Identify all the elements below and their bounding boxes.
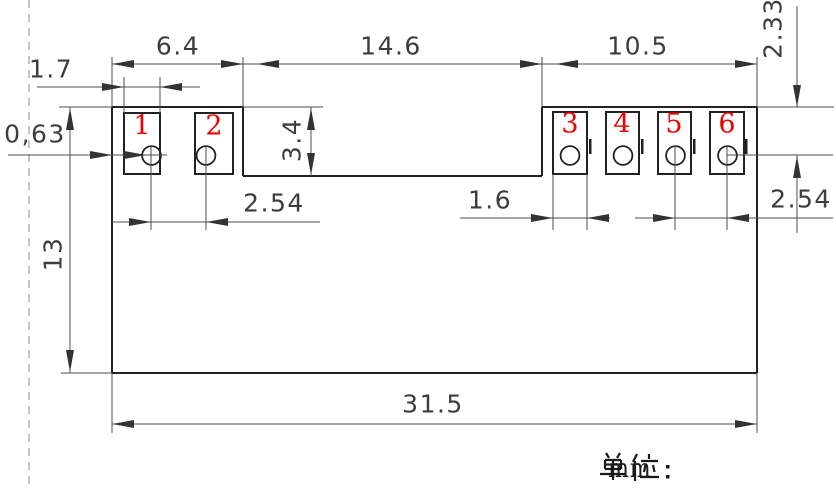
dim-label-edge-offset: 0,63 (4, 122, 66, 147)
unit-value: mm (608, 456, 652, 482)
pad-number-3: 3 (561, 111, 578, 138)
dim-label-notch-depth: 3.4 (280, 118, 305, 162)
hole-3 (561, 146, 580, 165)
dim-label-left-section: 6.4 (156, 34, 200, 59)
dim-label-top-to-hole: 2.33 (761, 0, 786, 59)
dim-label-middle-section: 14.6 (360, 34, 422, 59)
dimension-drawing: 6.4 14.6 10.5 1.7 0,63 3.4 2.54 1.6 2.54… (0, 0, 836, 490)
dim-label-right-pad-width: 1.6 (468, 188, 512, 213)
pad-number-6: 6 (718, 111, 735, 138)
pad-number-1: 1 (133, 113, 150, 140)
pad-number-2: 2 (205, 113, 222, 140)
hole-4 (614, 146, 633, 165)
unit-note: 单位： mm (596, 452, 659, 482)
dim-label-left-pitch: 2.54 (243, 191, 305, 216)
dim-label-overall-width: 31.5 (402, 392, 464, 417)
dimension-lines (37, 64, 833, 424)
dim-label-left-pad-width: 1.7 (29, 57, 73, 82)
pad-holes (142, 146, 737, 165)
pad-number-4: 4 (613, 111, 630, 138)
dim-label-right-pitch: 2.54 (770, 187, 832, 212)
dim-label-body-height: 13 (41, 237, 66, 272)
dim-label-right-section: 10.5 (607, 34, 669, 59)
pad-number-5: 5 (665, 111, 682, 138)
